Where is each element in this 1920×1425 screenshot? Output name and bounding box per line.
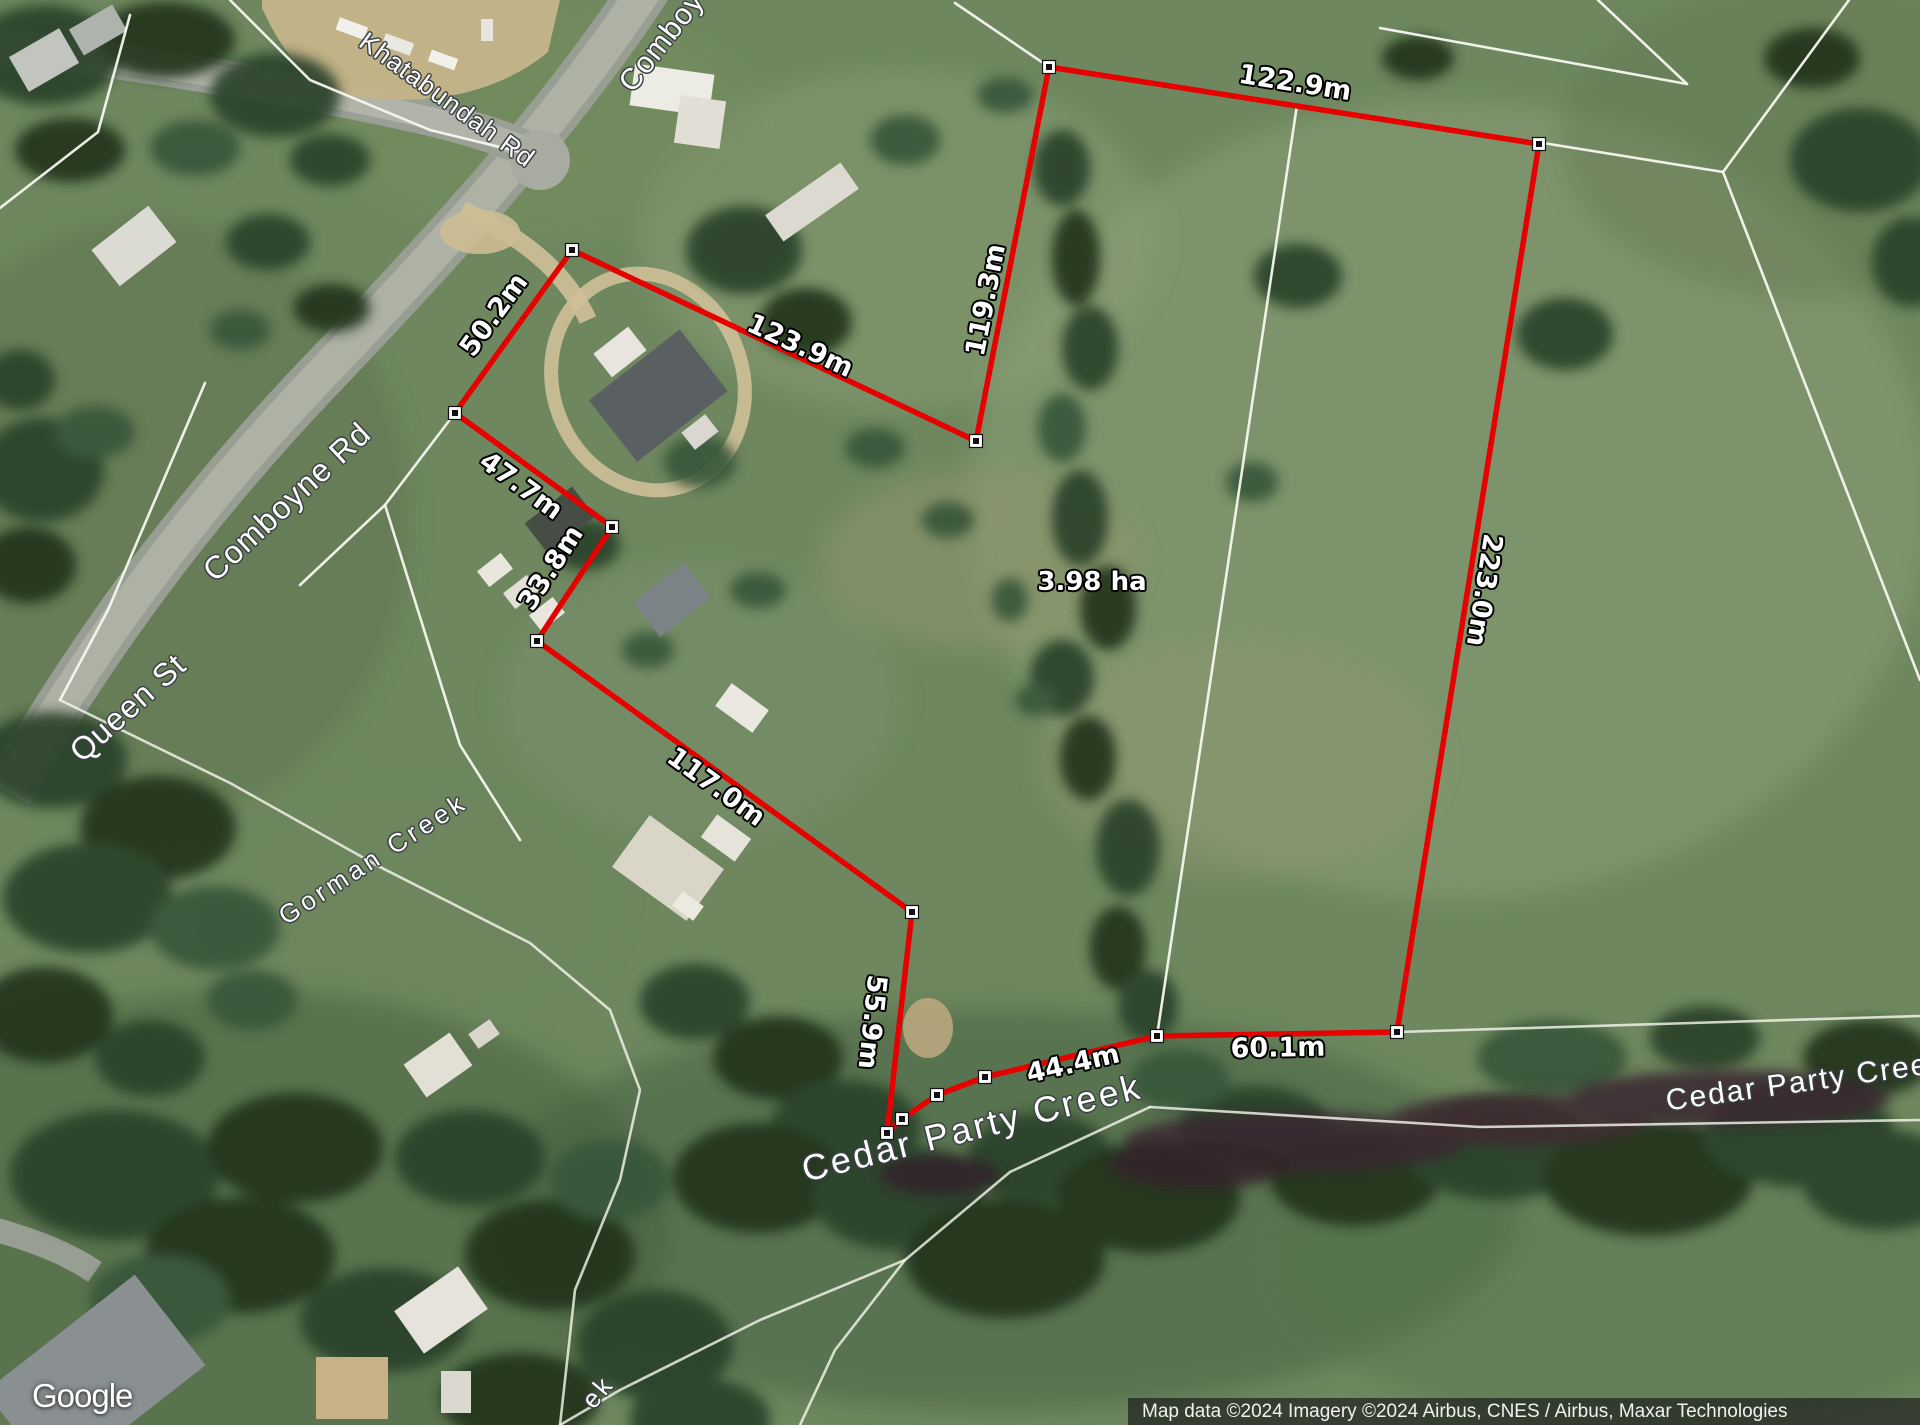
vertex-marker-center <box>899 1116 905 1122</box>
satellite-imagery <box>0 0 1920 1425</box>
measurement-label: 60.1m <box>1230 1032 1325 1065</box>
vertex-marker-center <box>973 438 979 444</box>
vertex-marker-center <box>534 638 540 644</box>
attribution-text: Map data ©2024 Imagery ©2024 Airbus, CNE… <box>1142 1401 1788 1423</box>
vertex-marker-center <box>909 909 915 915</box>
vertex-marker-center <box>982 1074 988 1080</box>
map-canvas[interactable]: 122.9m 119.3m 123.9m 50.2m 47.7m 33.8m 1… <box>0 0 1920 1425</box>
vertex-marker-center <box>934 1092 940 1098</box>
area-label: 3.98 ha <box>1037 567 1146 597</box>
attribution-bar: Map data ©2024 Imagery ©2024 Airbus, CNE… <box>1128 1398 1920 1425</box>
vertex-marker-center <box>452 410 458 416</box>
vertex-marker-center <box>609 524 615 530</box>
google-logo[interactable]: Google <box>32 1377 132 1415</box>
vertex-marker-center <box>1046 64 1052 70</box>
vertex-marker-center <box>1536 141 1542 147</box>
vertex-marker-center <box>569 247 575 253</box>
vertex-marker-center <box>1154 1033 1160 1039</box>
vertex-marker-center <box>1394 1029 1400 1035</box>
